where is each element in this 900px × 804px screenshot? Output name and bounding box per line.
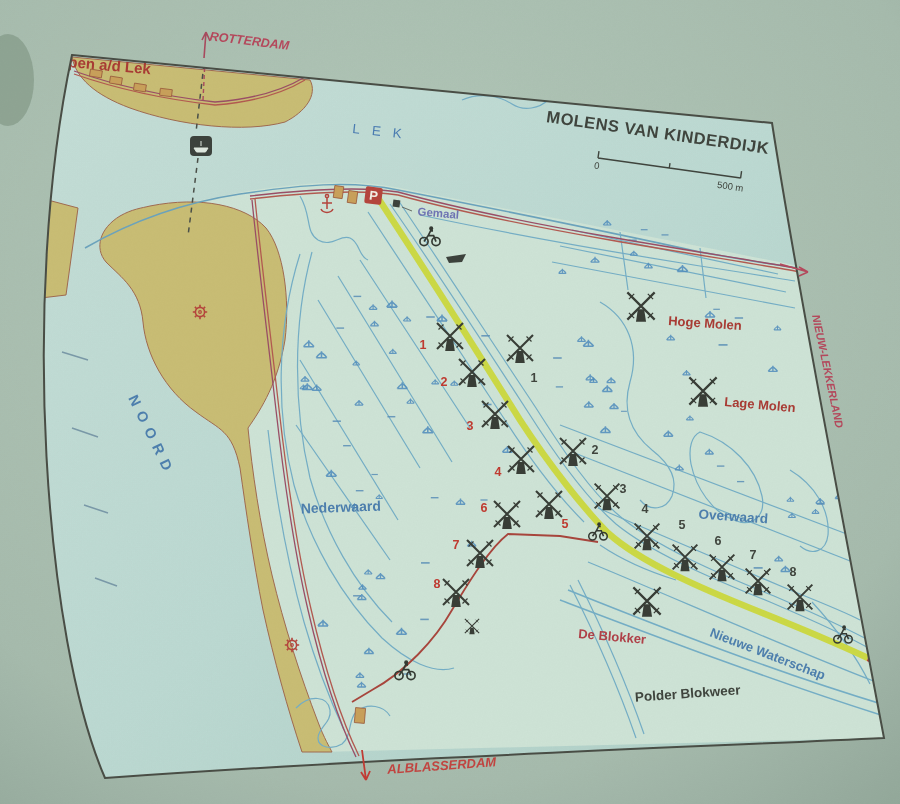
projected-map-photo: P MOLENS VAN KINDERDIJK 0 500 m Krimpen … bbox=[0, 0, 900, 804]
kinderdijk-map: P MOLENS VAN KINDERDIJK 0 500 m Krimpen … bbox=[0, 0, 900, 804]
photo-grain bbox=[0, 0, 900, 804]
